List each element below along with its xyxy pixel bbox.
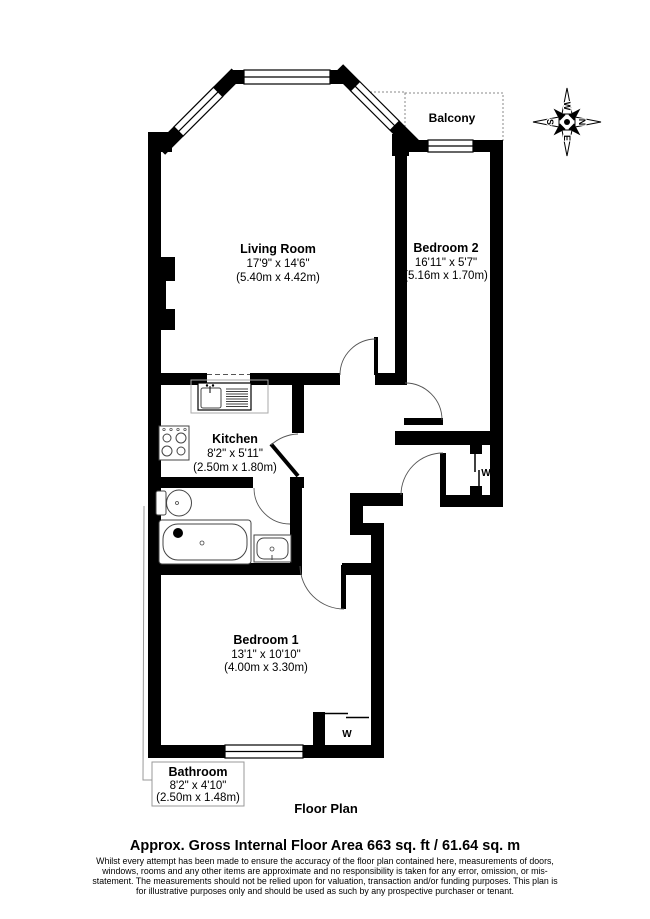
svg-text:Bathroom: Bathroom (168, 765, 227, 779)
bay-window-top (244, 70, 330, 84)
svg-text:16'11" x 5'7": 16'11" x 5'7" (415, 257, 477, 269)
bay-window-right (333, 64, 421, 152)
walls (148, 70, 503, 758)
floor-area-title: Approx. Gross Internal Floor Area 663 sq… (0, 838, 650, 854)
bedroom2-label: Bedroom 2 16'11" x 5'7" (5.16m x 1.70m) (404, 241, 488, 282)
bedroom1-window (225, 745, 303, 758)
floor-plan-page: Living Room 17'9" x 14'6" (5.40m x 4.42m… (0, 0, 650, 919)
toilet-icon (156, 490, 192, 516)
svg-text:17'9" x 14'6": 17'9" x 14'6" (246, 258, 309, 270)
svg-text:13'1" x 10'10": 13'1" x 10'10" (231, 649, 300, 661)
floor-plan-caption: Floor Plan (294, 801, 358, 816)
kitchen-sink-icon (198, 383, 251, 410)
hallway-door (401, 453, 446, 495)
stove-icon (159, 426, 189, 460)
floor-plan: Living Room 17'9" x 14'6" (5.40m x 4.42m… (0, 0, 650, 919)
living-room-door (340, 337, 378, 375)
svg-text:N: N (577, 119, 587, 126)
bedroom1-door (300, 565, 346, 609)
hall-wardrobe (475, 453, 479, 488)
svg-text:E: E (562, 135, 572, 141)
svg-text:8'2" x 5'11": 8'2" x 5'11" (207, 448, 263, 460)
chimney-breast (161, 257, 175, 330)
disclaimer-text: Whilst every attempt has been made to en… (90, 856, 560, 896)
bathtub-icon (159, 520, 251, 564)
bathroom-door (254, 488, 290, 524)
svg-text:W: W (562, 102, 572, 111)
svg-text:Living Room: Living Room (240, 242, 316, 256)
basin-icon (254, 535, 291, 562)
svg-text:(2.50m x 1.80m): (2.50m x 1.80m) (193, 462, 277, 474)
svg-text:Kitchen: Kitchen (212, 432, 258, 446)
svg-text:Bedroom 2: Bedroom 2 (413, 241, 478, 255)
svg-text:(5.16m x 1.70m): (5.16m x 1.70m) (404, 270, 488, 282)
bedroom1-wardrobe (325, 714, 369, 718)
bedroom1-wardrobe-label: W (342, 729, 352, 740)
svg-text:(2.50m x 1.48m): (2.50m x 1.48m) (156, 792, 240, 804)
bedroom2-window (428, 140, 473, 152)
svg-text:(4.00m x 3.30m): (4.00m x 3.30m) (224, 662, 308, 674)
kitchen-opening (207, 375, 250, 384)
svg-text:S: S (545, 119, 555, 125)
svg-text:Bedroom 1: Bedroom 1 (233, 633, 298, 647)
compass-rose-icon: N E S W (533, 88, 601, 156)
svg-text:8'2" x 4'10": 8'2" x 4'10" (170, 780, 227, 792)
svg-text:(5.40m x 4.42m): (5.40m x 4.42m) (236, 272, 320, 284)
balcony-label: Balcony (429, 111, 476, 125)
living-room-label: Living Room 17'9" x 14'6" (5.40m x 4.42m… (236, 242, 320, 284)
bay-window-left (155, 69, 241, 155)
kitchen-label: Kitchen 8'2" x 5'11" (2.50m x 1.80m) (193, 432, 277, 474)
hall-wardrobe-label: W (481, 468, 491, 479)
bedroom1-label: Bedroom 1 13'1" x 10'10" (4.00m x 3.30m) (224, 633, 308, 674)
bedroom2-door (404, 383, 443, 425)
